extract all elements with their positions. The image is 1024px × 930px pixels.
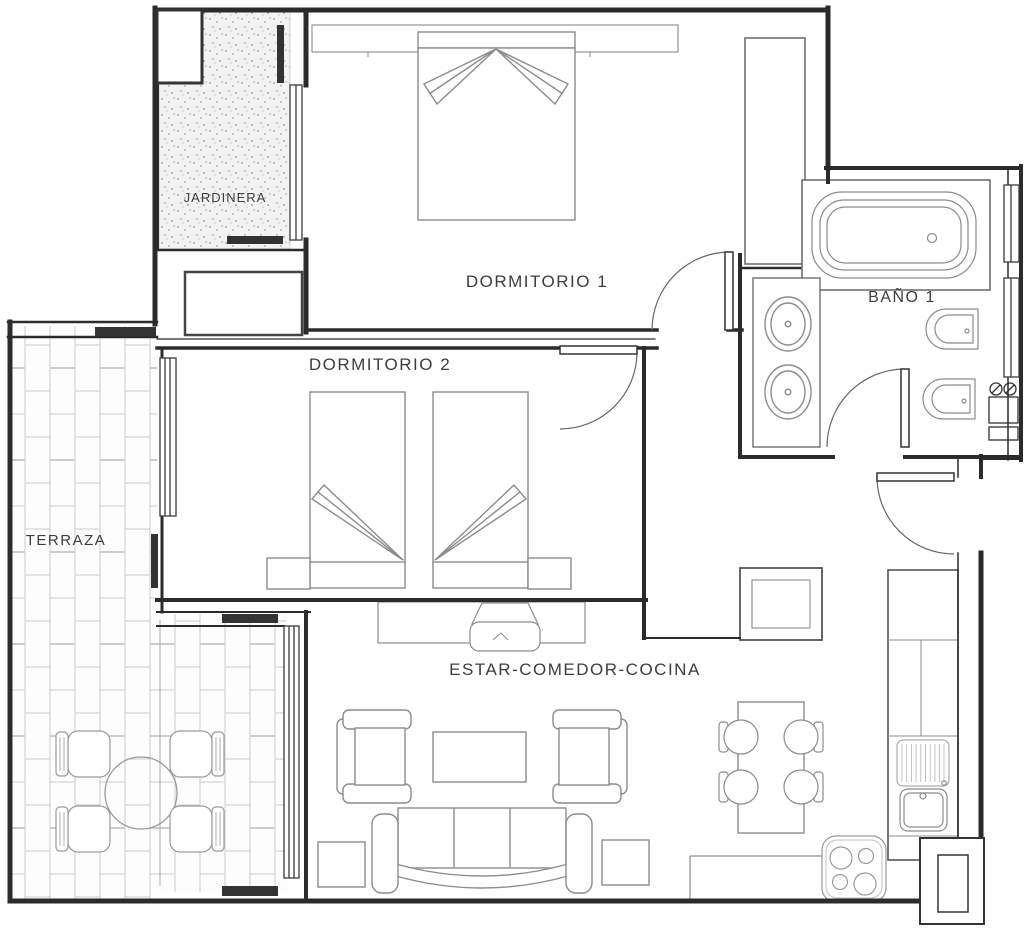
coffee-table-icon [433,732,526,782]
frame-bar-icon [95,327,156,336]
armchair-left-icon [337,710,411,803]
estar-comedor-cocina-label: ESTAR-COMEDOR-COCINA [449,660,701,679]
terrace-sliding-window-icon [284,626,299,878]
bath-window-bottom-icon [1004,278,1019,377]
oven-icon [920,838,984,924]
entry-door-swing-icon [877,473,954,554]
wall-pier [157,10,202,83]
jardinera-label: JARDINERA [184,190,267,205]
toilet-icon [926,309,978,349]
washbasin-top-icon [765,297,811,351]
bathtub-icon [802,180,990,290]
frame-bar-icon [227,236,283,244]
drainboard-icon [897,740,949,786]
bath-door-swing-icon [827,369,909,447]
dorm1-door-swing-icon [652,252,733,330]
bath-window-top-icon [1004,185,1019,262]
dormitorio2-label: DORMITORIO 2 [309,355,451,374]
frame-bar-icon [151,534,158,588]
frame-bar-icon [222,614,278,623]
wardrobe-icon [745,38,805,264]
floor-plan-canvas: JARDINERA DORMITORIO 1 DORMITORIO 2 TERR… [0,0,1024,930]
cooktop-icon [822,836,886,902]
terraza-label: TERRAZA [26,532,107,549]
double-bed-icon [418,32,575,220]
bano1-label: BAÑO 1 [868,286,936,306]
sofa-icon [372,808,592,893]
frame-bar-icon [222,886,278,896]
storage-cabinet-icon [740,568,822,640]
wall-niche [185,272,302,335]
frame-bar-icon [277,25,284,83]
dorm2-door-swing-icon [560,346,637,429]
dormitorio1-label: DORMITORIO 1 [466,272,608,291]
water-heater-icon [989,383,1018,440]
washbasin-bottom-icon [765,365,811,419]
lower-counter [690,856,822,899]
bidet-icon [923,379,975,419]
single-bed-right-icon [433,392,528,588]
floor-plan: JARDINERA DORMITORIO 1 DORMITORIO 2 TERR… [0,0,1024,930]
armchair-right-icon [553,710,627,803]
dorm2-window-icon [160,358,176,516]
planter-window-icon [290,85,302,240]
single-bed-left-icon [310,392,405,588]
tv-icon [470,603,540,651]
